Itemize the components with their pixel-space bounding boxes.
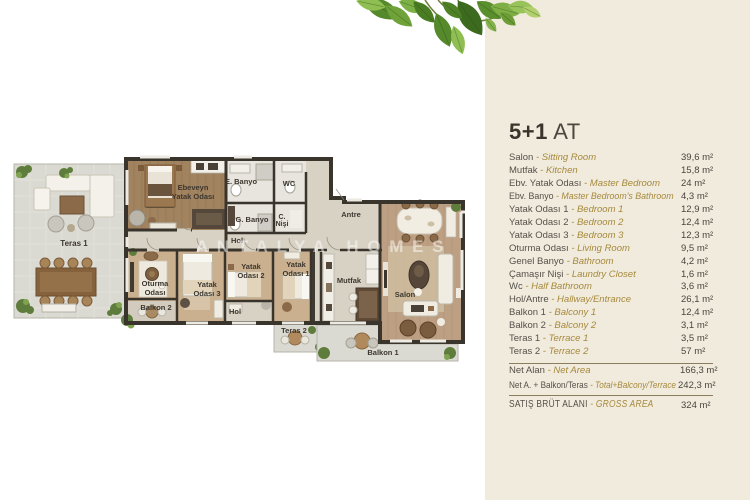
svg-text:G. Banyo: G. Banyo: [236, 215, 269, 224]
svg-text:Salon: Salon: [395, 290, 416, 299]
svg-text:Oturma: Oturma: [142, 279, 170, 288]
svg-text:Yatak: Yatak: [241, 262, 261, 271]
svg-text:E. Banyo: E. Banyo: [225, 177, 258, 186]
svg-text:WC: WC: [283, 179, 296, 188]
svg-text:Yatak: Yatak: [286, 260, 306, 269]
svg-text:C.: C.: [279, 214, 286, 221]
svg-text:Teras 2: Teras 2: [281, 326, 307, 335]
svg-text:Odası 1: Odası 1: [282, 269, 309, 278]
svg-text:Ebeveyn: Ebeveyn: [178, 183, 209, 192]
svg-text:Odası 3: Odası 3: [193, 289, 220, 298]
svg-text:Balkon 2: Balkon 2: [140, 303, 171, 312]
svg-text:Teras 1: Teras 1: [60, 239, 88, 248]
svg-text:Yatak Odası: Yatak Odası: [172, 192, 215, 201]
svg-text:Antre: Antre: [341, 210, 361, 219]
svg-text:Odası 2: Odası 2: [237, 271, 264, 280]
svg-text:Nişi: Nişi: [276, 221, 289, 228]
svg-text:Mutfak: Mutfak: [337, 276, 362, 285]
svg-text:ANTALYA HOMES: ANTALYA HOMES: [196, 237, 452, 256]
svg-text:Odası: Odası: [145, 288, 166, 297]
svg-text:Balkon 1: Balkon 1: [367, 348, 398, 357]
svg-text:Yatak: Yatak: [197, 280, 217, 289]
svg-text:Hol: Hol: [229, 307, 241, 316]
